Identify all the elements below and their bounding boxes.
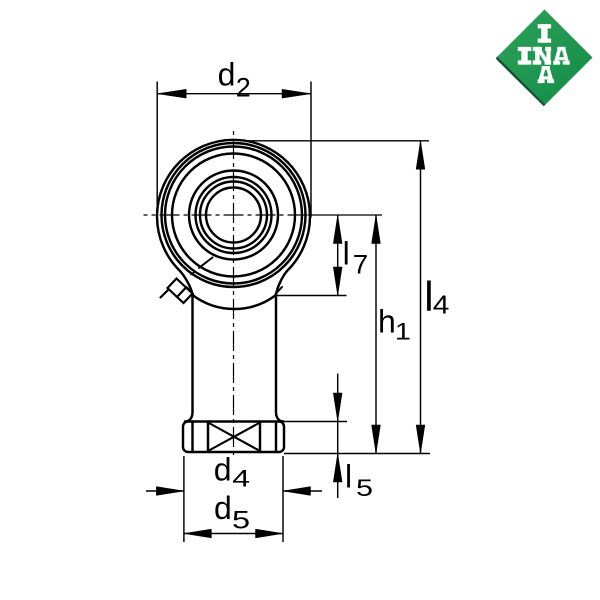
svg-text:1: 1: [395, 318, 411, 345]
svg-text:h: h: [378, 303, 396, 339]
svg-text:l: l: [345, 459, 352, 495]
svg-text:5: 5: [232, 507, 250, 535]
svg-text:2: 2: [236, 73, 251, 103]
svg-text:4: 4: [232, 464, 250, 491]
svg-text:7: 7: [353, 249, 368, 279]
svg-text:l: l: [343, 235, 350, 271]
svg-text:d: d: [214, 490, 232, 526]
svg-text:d: d: [218, 57, 236, 93]
svg-text:d: d: [214, 452, 232, 488]
svg-text:5: 5: [356, 474, 373, 501]
svg-text:4: 4: [433, 290, 450, 319]
